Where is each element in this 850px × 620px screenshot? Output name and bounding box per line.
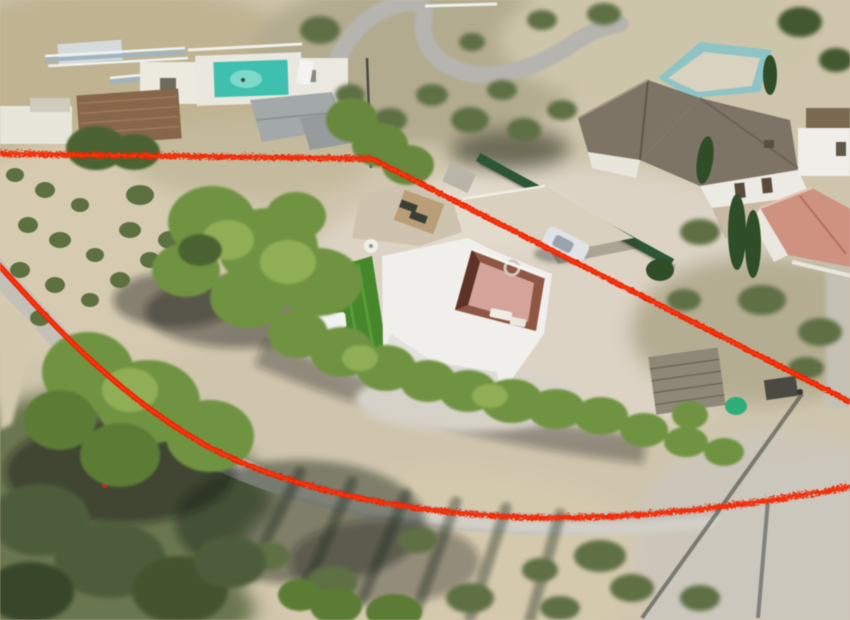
bush [398, 527, 438, 553]
bush [459, 33, 485, 51]
window [761, 178, 773, 194]
cypress-tree [728, 194, 746, 270]
canopy-highlight [260, 240, 316, 284]
bush [522, 558, 558, 582]
bush [798, 318, 842, 346]
outbuilding-roof [30, 98, 70, 112]
bush [507, 118, 541, 142]
tree-canopy [672, 401, 708, 429]
olive-tree [126, 185, 154, 205]
cypress-tree [763, 55, 777, 95]
cypress-tree [745, 210, 761, 278]
olive-tree [10, 262, 30, 278]
tree-canopy [278, 579, 322, 611]
bush [680, 585, 720, 611]
bush [680, 219, 720, 245]
dense-scrub [194, 536, 266, 588]
olive-tree [6, 168, 24, 182]
green-tarp [725, 397, 747, 415]
bush [574, 540, 626, 572]
bush [446, 583, 494, 613]
olive-tree [18, 217, 38, 233]
bush [527, 10, 557, 30]
canopy-highlight [342, 345, 378, 371]
olive-tree [110, 272, 130, 288]
tree-canopy [664, 427, 708, 457]
roof-window [764, 140, 774, 148]
olive-tree [81, 293, 99, 307]
parasol-pole [369, 244, 373, 248]
canopy-shade [178, 234, 222, 266]
bush [547, 100, 577, 120]
bush [451, 107, 489, 133]
pool-highlight [230, 70, 262, 88]
olive-tree [45, 277, 65, 293]
bush [300, 16, 340, 44]
olive-tree [35, 182, 55, 198]
window [836, 142, 846, 156]
aerial-photo [0, 0, 850, 620]
olive-tree [49, 232, 71, 248]
bush-at-fence [646, 259, 674, 281]
olive-tree [119, 222, 141, 238]
tree-canopy [704, 438, 744, 466]
pine-canopy [80, 423, 160, 487]
aerial-photo-canvas [0, 0, 850, 620]
tree-canopy [620, 413, 668, 447]
white-wall [425, 4, 497, 6]
olive-tree [71, 198, 89, 212]
bush [610, 574, 654, 602]
utility-pole [797, 389, 803, 395]
olive-tree [86, 248, 104, 262]
bush [738, 285, 786, 315]
brown-roof-fragment [806, 108, 850, 128]
tree-canopy [574, 397, 628, 435]
bush [540, 596, 580, 620]
tree-canopy [266, 192, 326, 240]
bush [778, 7, 822, 37]
canopy-highlight [472, 384, 508, 408]
bush [487, 80, 517, 100]
bush [587, 3, 621, 25]
bush [416, 84, 448, 106]
swimmer [241, 78, 245, 82]
